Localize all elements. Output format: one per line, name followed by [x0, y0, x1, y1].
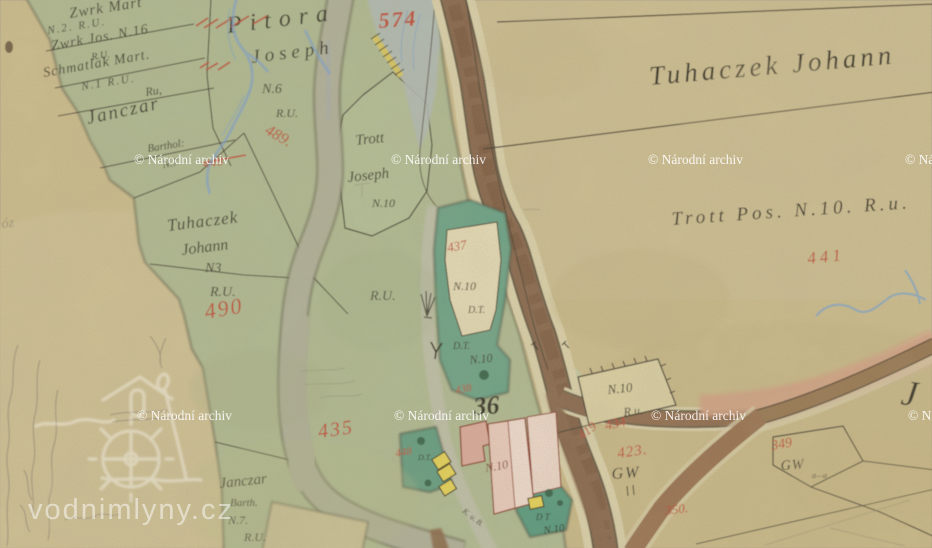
- svg-text:© Ná: © Ná: [905, 152, 932, 167]
- svg-text:vodnimlyny.cz: vodnimlyny.cz: [28, 494, 234, 526]
- svg-text:© Ná: © Ná: [908, 408, 932, 423]
- svg-text:© Národní archiv: © Národní archiv: [651, 408, 746, 423]
- svg-text:© Národní archiv: © Národní archiv: [648, 152, 743, 167]
- svg-text:© Národní archiv: © Národní archiv: [134, 152, 229, 167]
- svg-text:© Národní archiv: © Národní archiv: [394, 408, 489, 423]
- svg-text:© Národní archiv: © Národní archiv: [137, 408, 232, 423]
- svg-text:© Národní archiv: © Národní archiv: [391, 152, 486, 167]
